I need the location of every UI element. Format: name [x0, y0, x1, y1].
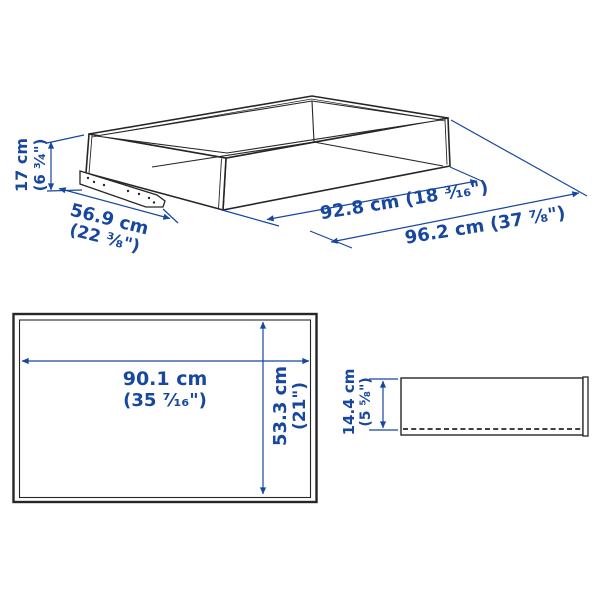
drawer-dimension-diagram: 17 cm (6 ³⁄₄") 56.9 cm (22 ³⁄₈") 92.8 cm… — [0, 0, 600, 600]
top-width-label-inch: (35 ⁷⁄₁₆") — [123, 390, 207, 411]
side-height-label-inch: (5 ⁵⁄₈") — [358, 377, 374, 426]
diagram-svg: 17 cm (6 ³⁄₄") 56.9 cm (22 ³⁄₈") 92.8 cm… — [0, 0, 600, 600]
height-label-inch: (6 ³⁄₄") — [31, 139, 49, 192]
top-depth-label-cm: 53.3 cm — [270, 366, 291, 446]
side-view: 14.4 cm (5 ⁵⁄₈") — [340, 369, 588, 436]
side-view-front-edge-bar — [583, 377, 588, 436]
top-width-label-cm: 90.1 cm — [123, 368, 208, 390]
top-view: 90.1 cm (35 ⁷⁄₁₆") 53.3 cm (21") — [14, 314, 317, 502]
side-view-panel-rect — [401, 378, 583, 435]
side-height-label-cm: 14.4 cm — [340, 369, 358, 436]
height-label-cm: 17 cm — [12, 138, 31, 192]
outer-width-label: 96.2 cm (37 ⁷⁄₈") — [403, 203, 567, 249]
dimension-side-height: 14.4 cm (5 ⁵⁄₈") — [340, 369, 398, 436]
isometric-view: 17 cm (6 ³⁄₄") 56.9 cm (22 ³⁄₈") 92.8 cm… — [12, 96, 587, 258]
top-depth-label-inch: (21") — [290, 382, 310, 430]
dimension-depth-tick — [163, 209, 178, 223]
dimension-height-tick-top — [47, 135, 84, 143]
dimension-inner-width-ext-left — [222, 210, 279, 226]
dimension-height: 17 cm (6 ³⁄₄") — [12, 135, 84, 192]
